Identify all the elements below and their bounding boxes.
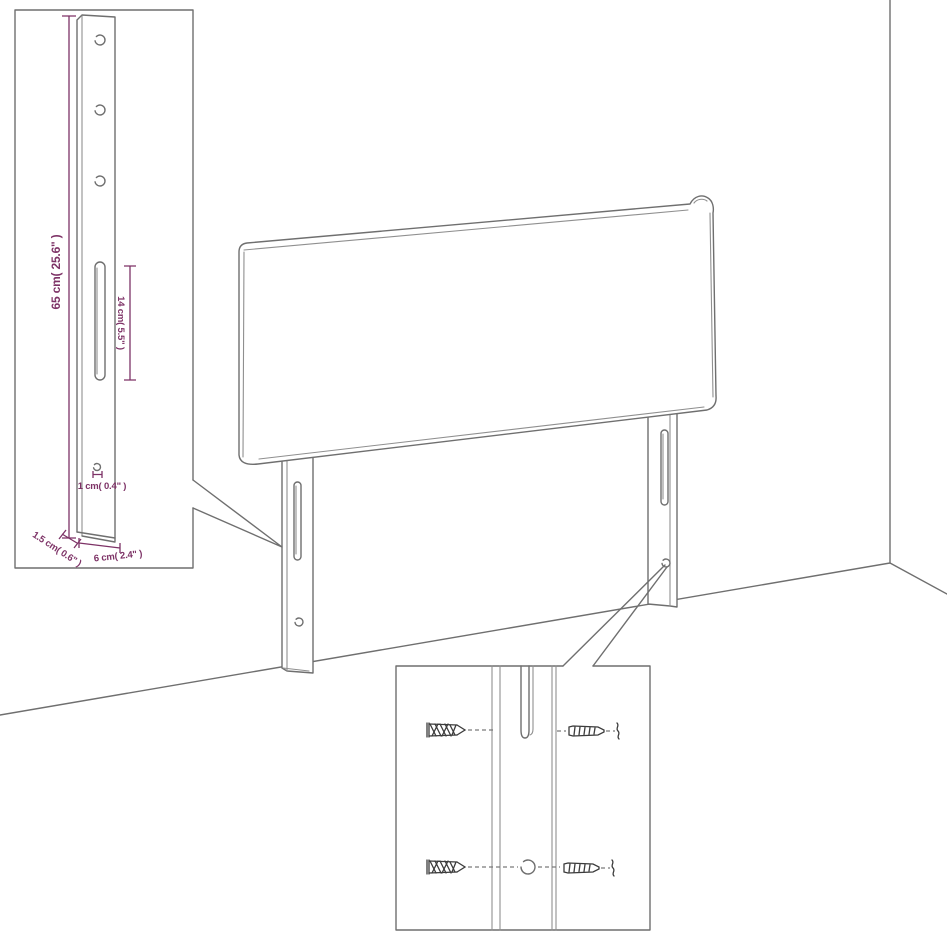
dimension-label-leg-height: 65 cm( 25.6" ) [49,234,63,309]
product-diagram-canvas: 65 cm( 25.6" ) 14 cm( 5.5" ) 1 cm( 0.4" … [0,0,947,947]
diagram-svg: 65 cm( 25.6" ) 14 cm( 5.5" ) 1 cm( 0.4" … [0,0,947,947]
dimension-label-hole-diameter: 1 cm( 0.4" ) [78,481,127,492]
floor-line-right [890,563,947,594]
headboard-panel [239,196,716,464]
inset-background [396,666,650,930]
callout-pointer-lines [193,480,282,547]
panel-outline [239,196,716,464]
dimension-label-slot-length: 14 cm( 5.5" ) [115,296,126,350]
detail-inset-mounting [396,565,667,930]
headboard-leg-left [282,448,313,673]
